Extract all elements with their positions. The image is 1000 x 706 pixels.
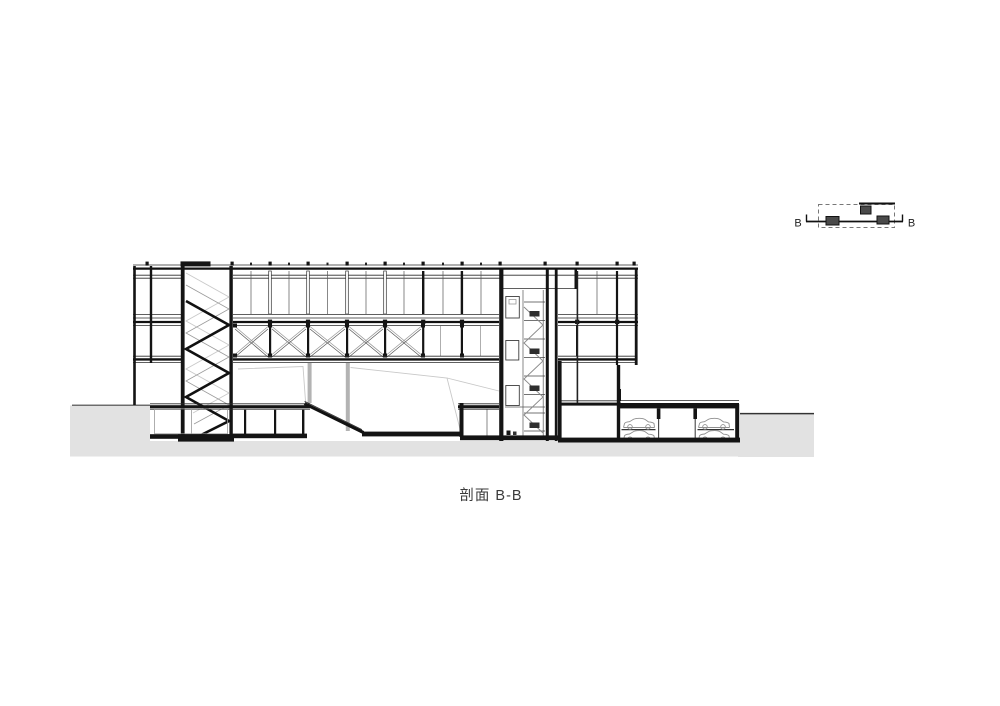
left-inner-column — [150, 266, 152, 363]
ground-fill-right — [738, 415, 814, 458]
parking-right-wall — [735, 404, 739, 443]
core-stair — [524, 302, 545, 433]
upper-columns — [251, 271, 597, 314]
right-wing-column — [577, 271, 579, 403]
truss-gussets — [233, 324, 464, 358]
key-plan-block — [877, 216, 889, 224]
core-mid-wall — [546, 269, 549, 441]
drawing-sheet: B B 剖面 B-B — [0, 0, 1000, 706]
elevator-cabs — [506, 297, 520, 406]
right-wing-left-wall — [558, 361, 562, 441]
section-marker-label-left: B — [794, 218, 801, 230]
parking-edge-stub — [619, 389, 621, 401]
hall-column-right — [346, 363, 350, 431]
left-facade-wall — [133, 266, 136, 405]
elevator-pit-marker — [507, 431, 511, 436]
truss-x-braces — [235, 327, 421, 358]
core-left-wall — [499, 269, 503, 441]
key-plan-block — [826, 217, 839, 226]
ground-fill-under-building — [150, 441, 740, 457]
stair-shaft-right-wall — [229, 266, 232, 441]
section-marker-label-right: B — [908, 218, 915, 230]
key-plan: B B — [794, 204, 915, 230]
ground-fill-left — [70, 406, 150, 457]
stair-parapet — [181, 261, 211, 266]
truss-band — [233, 324, 618, 358]
left-wing — [133, 266, 152, 405]
right-facade-wall — [635, 268, 638, 365]
key-plan-block — [861, 206, 872, 214]
core-right-wall — [555, 269, 558, 441]
stair-shaft-left-wall — [181, 263, 185, 441]
right-wing-lower-wall — [617, 365, 620, 441]
truss-columns — [269, 326, 618, 357]
section-drawing-canvas: B B 剖面 B-B — [0, 0, 1000, 706]
hall-column-left — [308, 363, 312, 403]
hall-right-wall — [460, 403, 464, 437]
section-caption: 剖面 B-B — [459, 487, 522, 504]
parking-roof-slab — [617, 403, 739, 408]
